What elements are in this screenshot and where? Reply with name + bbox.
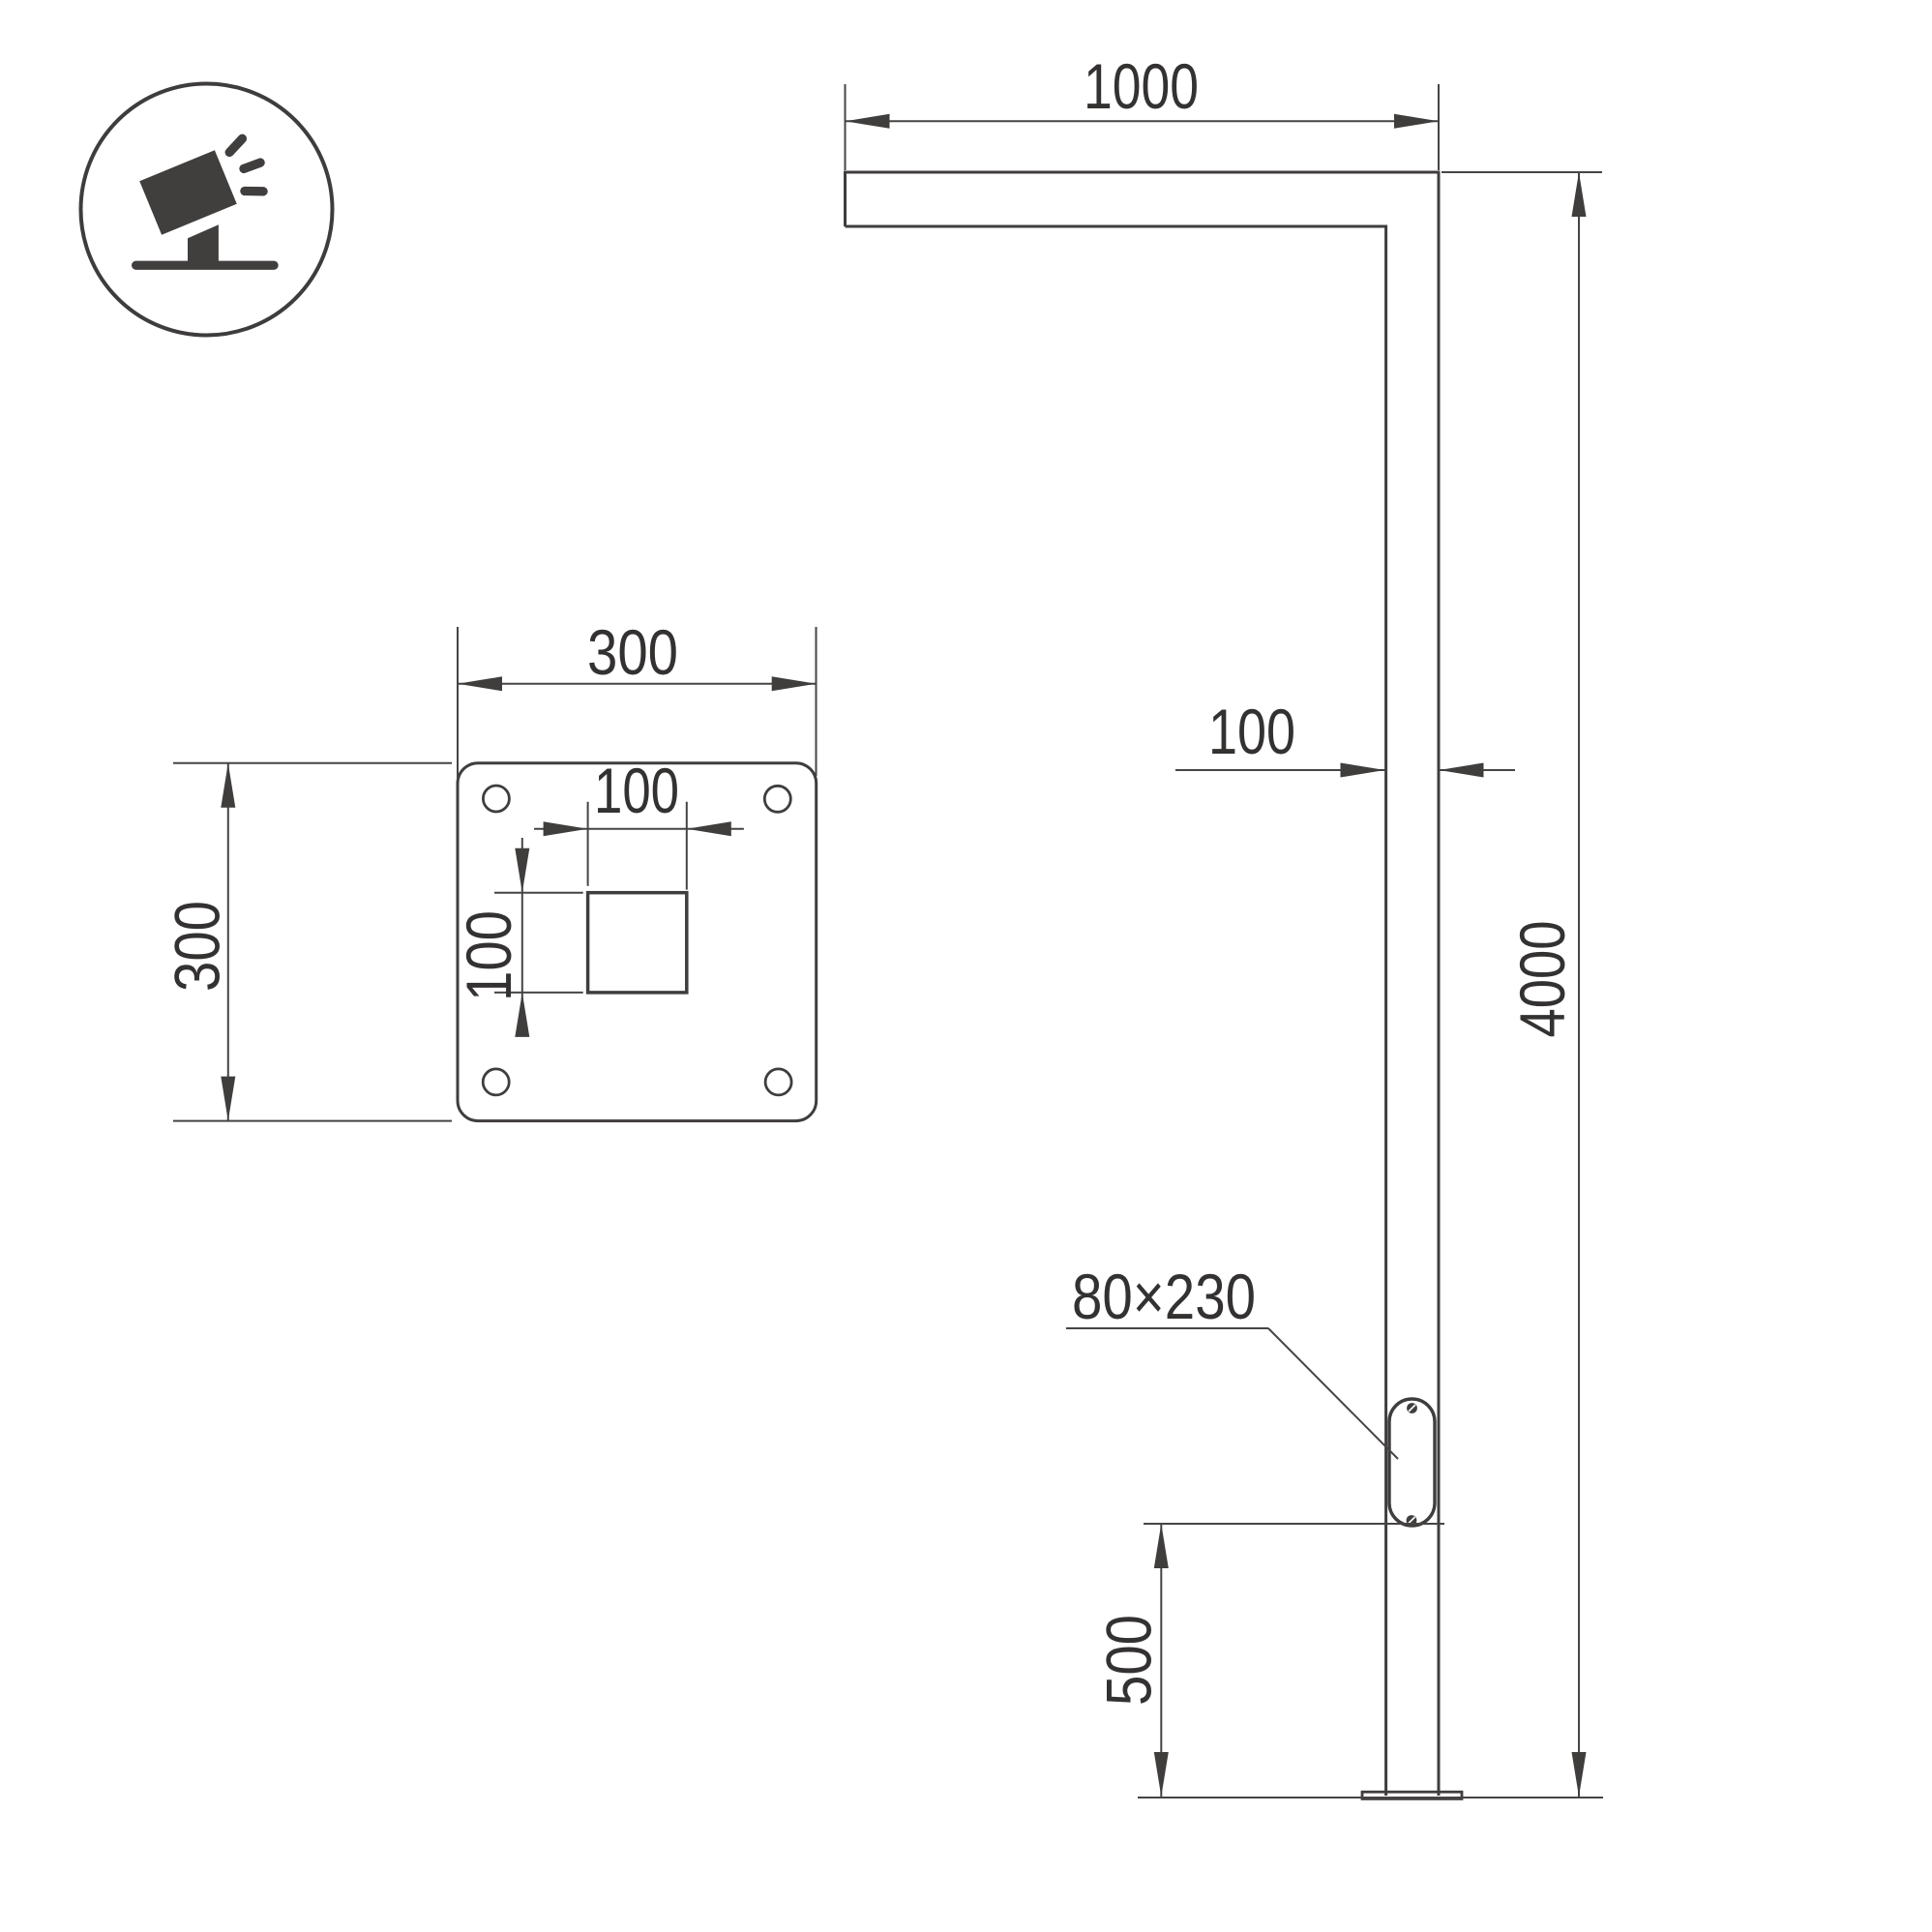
svg-text:300: 300	[162, 901, 233, 992]
svg-text:300: 300	[587, 616, 678, 688]
svg-text:4000: 4000	[1506, 921, 1578, 1038]
svg-text:1000: 1000	[1084, 50, 1199, 122]
svg-text:100: 100	[594, 755, 679, 826]
svg-text:100: 100	[1208, 696, 1295, 767]
svg-text:80×230: 80×230	[1072, 1261, 1256, 1332]
svg-text:500: 500	[1093, 1615, 1165, 1706]
svg-text:100: 100	[453, 910, 524, 1001]
